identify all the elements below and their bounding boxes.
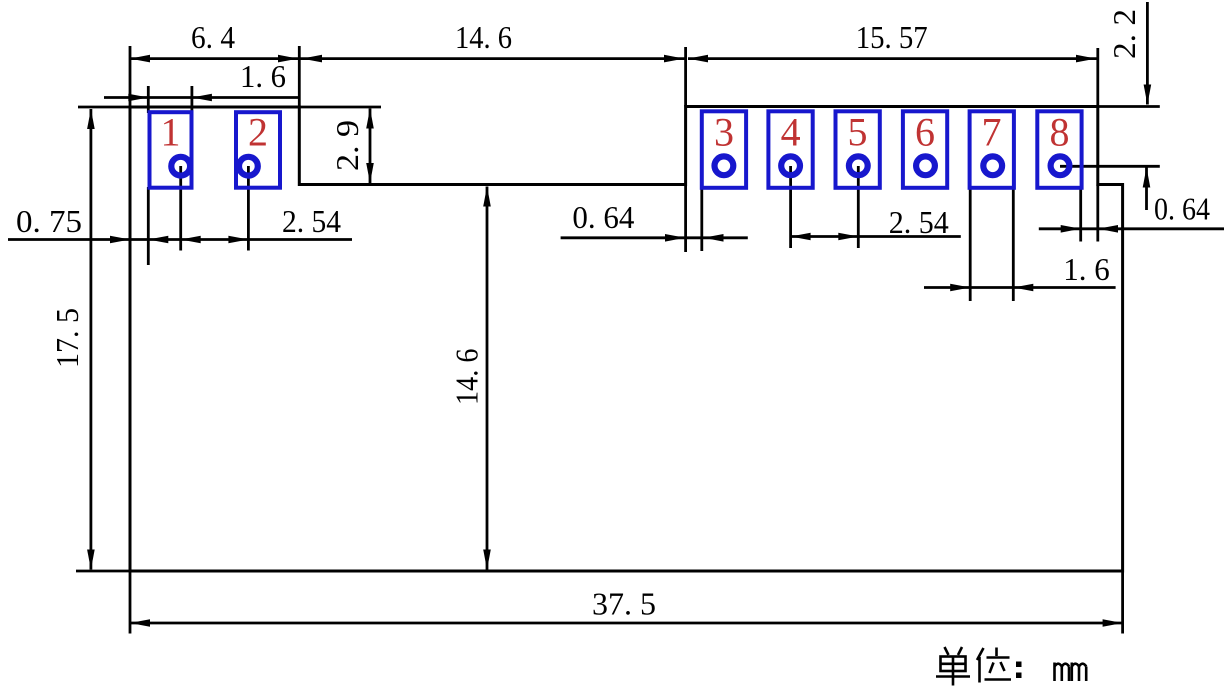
svg-text:1. 6: 1. 6 bbox=[240, 58, 286, 94]
svg-text:6. 4: 6. 4 bbox=[191, 19, 235, 55]
svg-text:8: 8 bbox=[1050, 110, 1070, 155]
svg-text:5: 5 bbox=[848, 110, 868, 155]
svg-text:2. 54: 2. 54 bbox=[889, 204, 949, 240]
svg-text:4: 4 bbox=[781, 110, 801, 155]
svg-text:1: 1 bbox=[161, 110, 181, 155]
svg-text:37. 5: 37. 5 bbox=[592, 586, 656, 622]
svg-text:17. 5: 17. 5 bbox=[49, 308, 85, 368]
svg-text:14. 6: 14. 6 bbox=[455, 19, 512, 55]
svg-text:0. 64: 0. 64 bbox=[1154, 191, 1210, 227]
svg-text:2: 2 bbox=[248, 110, 268, 155]
svg-text:1. 6: 1. 6 bbox=[1063, 251, 1110, 287]
svg-text:3: 3 bbox=[714, 110, 734, 155]
svg-text:7: 7 bbox=[982, 110, 1002, 155]
svg-text:15. 57: 15. 57 bbox=[856, 19, 928, 55]
svg-text:14. 6: 14. 6 bbox=[449, 349, 485, 406]
svg-text:0. 64: 0. 64 bbox=[572, 199, 634, 235]
svg-text:2. 54: 2. 54 bbox=[282, 203, 341, 239]
svg-text:2. 2: 2. 2 bbox=[1106, 9, 1142, 59]
svg-text:0. 75: 0. 75 bbox=[16, 203, 82, 239]
svg-text:6: 6 bbox=[915, 110, 935, 155]
svg-text:2. 9: 2. 9 bbox=[329, 120, 365, 171]
